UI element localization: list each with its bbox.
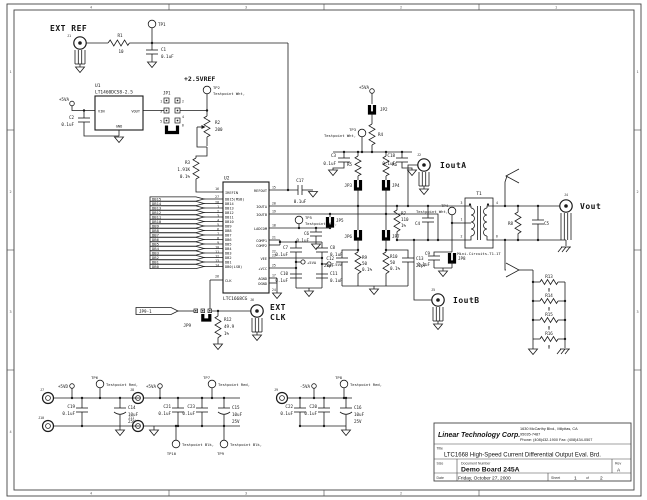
tp2-label: TP2 [213, 85, 220, 90]
ground-symbol [115, 137, 124, 143]
db-flag-row: DB3 11 DB3 [150, 250, 232, 256]
schematic-sheet: 4 3 2 1 4 3 2 1 2 3 4 1 2 3 EXT REF J1 R… [0, 0, 647, 500]
decoupling-cluster: C7 0.1uF +5VA C10 0.1uF C8 0.1uF -5VA C1… [269, 240, 343, 299]
u2-pin-num: 2 [217, 209, 219, 213]
db-flag-row: DB1 13 DB1 [150, 259, 232, 265]
ioutb-label: IoutB [453, 296, 480, 305]
u2-pin-name: DB5 [225, 243, 232, 247]
doc-number: Demo Board 245A [461, 467, 520, 474]
m5va-label: -5VA [300, 384, 311, 389]
r15-value: 0 [548, 326, 551, 331]
u2-pin-name: DGND [258, 282, 267, 286]
c15-refdes: C15 [232, 405, 240, 410]
jp1-shunt [167, 126, 178, 133]
db-flag-row: DB14 28 DB14 [150, 200, 234, 206]
testpoint-tp10 [172, 440, 180, 448]
zone-right-3: 3 [636, 310, 638, 314]
ground-symbol [408, 170, 417, 176]
c19-value: 0.1uF [62, 411, 75, 416]
tp9-label: TP9 [217, 451, 225, 456]
ground-symbol [150, 430, 159, 436]
c12-refdes: C12 [326, 256, 334, 261]
u2-pin-num: 18 [272, 224, 276, 228]
transformer-t1: T1 Mini-Circuits-T1-1T 3 1 2 4 6 [457, 191, 501, 256]
u2-pin-name: DB10 [225, 220, 234, 224]
rev-label: Rev [615, 462, 621, 466]
ground-symbol [309, 192, 318, 198]
ground-symbol [342, 430, 351, 436]
c16-rating: 25V [354, 419, 362, 424]
jp5-label: JP5 [336, 218, 344, 223]
r16-value: 0 [548, 345, 551, 350]
capacitor-c21: C21 0.1uF [158, 397, 184, 427]
tp3-type: Testpoint Wht, [324, 133, 356, 138]
doc-number-label: Document Number [461, 462, 491, 466]
vee-m5va-label: -5VA [333, 262, 343, 267]
jumper-jp6 [356, 230, 361, 239]
u2-pin-num: 8 [217, 236, 219, 240]
ground-symbol [76, 67, 85, 73]
r10-refdes: R10 [390, 254, 398, 259]
zone-top-3: 2 [400, 6, 402, 10]
u2-pin-num: 3 [217, 214, 219, 218]
u2-pin-num: 12 [215, 254, 219, 258]
banana-jack-j7 [43, 393, 54, 404]
u2-pin-num: 5 [217, 223, 219, 227]
tp10-label: TP10 [167, 451, 177, 456]
c7-refdes: C7 [283, 245, 289, 250]
u2-pin-name: IOUTA [256, 205, 268, 209]
power-terminal [301, 260, 305, 264]
r5-jp3-branch: R5 JP3 [344, 152, 361, 206]
power-terminal [70, 101, 75, 106]
db-flag-row: DB5 9 DB5 [150, 241, 232, 247]
t1-refdes: T1 [476, 191, 482, 197]
power-group-5va: J8 +5VA TP7 Testpoint Red, C21 0.1uF C23… [128, 375, 262, 456]
tp4-label: TP4 [441, 203, 449, 208]
c17-refdes: C17 [296, 178, 304, 183]
jumper-jp9: JP9 [183, 309, 211, 328]
potentiometer-r2: R2 200 [197, 111, 223, 148]
ground-symbol [434, 324, 443, 330]
t1-pin3: 3 [461, 201, 463, 205]
u2-pin-num: 16 [215, 187, 219, 191]
r8-refdes: R8 [508, 221, 514, 226]
u2-pin-num: 27 [215, 195, 219, 199]
testpoint-tp9 [220, 440, 228, 448]
c13-refdes: C13 [416, 256, 424, 261]
tp10-type: Testpoint Blk, [182, 442, 214, 447]
u2-pin-name: DB8 [225, 229, 232, 233]
banana-jack-j10 [43, 421, 54, 432]
title-block: Linear Technology Corp. 1630 McCarthy Bl… [434, 423, 631, 482]
ground-symbol [370, 289, 379, 295]
capacitor-c10: C10 0.1uF [275, 271, 302, 283]
zone-bottom-1: 4 [90, 492, 92, 496]
zone-left-4: 4 [9, 430, 11, 434]
r7-refdes: R7 [401, 211, 407, 216]
c21-refdes: C21 [163, 404, 171, 409]
r5-refdes: R5 [347, 162, 353, 167]
company-name: Linear Technology Corp. [438, 432, 520, 439]
jp2-label: JP2 [380, 107, 388, 112]
c5-refdes: C5 [544, 221, 550, 226]
iouta-connector: J2 IoutA [408, 153, 467, 206]
c7-value: 0.1uF [275, 252, 288, 257]
power-terminal [158, 384, 163, 389]
iouta-label: IoutA [440, 161, 467, 170]
c17-value: 0.1uF [294, 199, 307, 204]
u2-pin-num: 24 [272, 288, 276, 292]
u2-pin-num: 26 [215, 275, 219, 279]
r3-tolerance: 0.1% [180, 174, 191, 179]
db-flag-row: DB6 8 DB6 [150, 236, 232, 242]
u1-pin-vout: VOUT [131, 110, 140, 114]
sheet-total: 2 [600, 476, 603, 482]
u2-refdes: U2 [224, 176, 230, 182]
capacitor-c19: C19 0.1uF [62, 397, 88, 427]
r2-refdes: R2 [215, 120, 221, 125]
resistor-r8: R8 [508, 206, 521, 240]
r12-tolerance: 1% [224, 331, 230, 336]
c20-refdes: C20 [309, 404, 317, 409]
c16-value: 10uF [354, 412, 365, 417]
resistor-r15: R15 0 [533, 312, 565, 331]
t1-pin2: 2 [461, 235, 463, 239]
u2-pin-name: DB11 [225, 216, 234, 220]
db-flag-row: DB4 10 DB4 [150, 245, 232, 251]
u1-part: LT1460DCS8-2.5 [95, 90, 133, 96]
u2-pin-name: DB9 [225, 225, 232, 229]
vref-label: +2.5VREF [184, 75, 215, 83]
r7-tolerance: 1% [401, 223, 407, 228]
sheet-label: Sheet [551, 476, 560, 480]
p5vd-label: +5VD [58, 384, 69, 389]
u1-pin-vin: VIN [98, 110, 105, 114]
vcc-5va-label: +5VA [307, 260, 317, 265]
jp1-label: JP1 [163, 91, 171, 96]
u2-pin-name: DB12 [225, 211, 234, 215]
u2-pin-name: LADCOM [254, 227, 268, 231]
resistor-r12: R12 49.9 1% [214, 311, 235, 350]
zone-left-2: 2 [9, 190, 11, 194]
c2-refdes: C2 [69, 115, 75, 120]
ext-ref-section: EXT REF J1 R1 10 TP1 C1 0.1uF [50, 20, 288, 190]
db-flag-row: DB12 2 DB12 [150, 209, 234, 215]
u2-pin-num: 1 [217, 205, 219, 209]
db-flag-row: DB13 1 DB13 [150, 205, 234, 211]
u2-pin-num: 7 [217, 232, 219, 236]
c22-refdes: C22 [285, 404, 293, 409]
tp3-label: TP3 [349, 127, 356, 132]
power-terminal [312, 384, 317, 389]
testpoint-tp5 [295, 216, 303, 224]
power-group-m5va: J9 -5VA TP8 Testpoint Red, C22 0.1uF C20… [274, 375, 382, 436]
jp7-label: JP7 [392, 234, 400, 239]
jp1-pin1: 1 [160, 100, 162, 104]
bnc-connector-j4 [558, 200, 572, 252]
u2-pin-num: 21 [272, 236, 276, 240]
zone-bottom-3: 2 [400, 492, 402, 496]
company-address-2: 95035-7487 [520, 433, 540, 437]
sheet-number: 1 [574, 476, 577, 482]
t1-pin1: 1 [461, 218, 463, 222]
r3-refdes: R3 [185, 160, 191, 165]
capacitor-c18: C18 0.1uF [382, 152, 416, 176]
jumper-jp8 [450, 253, 455, 262]
zone-bottom-2: 3 [245, 492, 247, 496]
u2-pin-num: 11 [215, 250, 219, 254]
bnc-connector-j1 [74, 37, 86, 73]
c8-refdes: C8 [330, 245, 336, 250]
ground-tie-ladder: R13 0 R14 0 R15 0 R16 0 [529, 270, 571, 355]
j1-refdes: J1 [67, 34, 71, 38]
c15-value: 10uF [232, 412, 243, 417]
c23-value: 0.1uF [182, 411, 195, 416]
tp7-type: Testpoint Red, [218, 382, 250, 387]
resistor-r1 [108, 40, 129, 46]
c22-value: 0.1uF [280, 411, 293, 416]
r7-value: 110 [401, 217, 409, 222]
u2-pin-num: 13 [215, 259, 219, 263]
testpoint-tp6 [96, 380, 104, 388]
j7-refdes: J7 [40, 388, 44, 392]
jumper-jp4 [384, 180, 389, 189]
resistor-r7 [394, 210, 400, 232]
r14-value: 0 [548, 307, 551, 312]
u2-pin-name: CLK [225, 279, 232, 283]
u2-pin-name: DB3 [225, 252, 232, 256]
resistor-r3: R3 1.91K 0.1% [177, 158, 199, 179]
company-address-1: 1630 McCarthy Blvd., Milpitas, CA [520, 427, 578, 431]
ext-clk-label-1: EXT [270, 303, 286, 312]
jumper-jp3 [356, 180, 361, 189]
power-terminal [370, 89, 375, 94]
company-phone: Phone: (408)432-1900 Fax: (408)434-0507 [520, 438, 592, 442]
jp1-pin4: 4 [182, 115, 184, 119]
tp9-type: Testpoint Blk, [230, 442, 262, 447]
u2-pin-name: DB2 [225, 256, 232, 260]
j8-refdes: J8 [130, 388, 134, 392]
capacitor-c16: C16 10uF 25V [340, 397, 365, 426]
vout-label: Vout [580, 202, 601, 211]
schematic-canvas: 4 3 2 1 4 3 2 1 2 3 4 1 2 3 EXT REF J1 R… [0, 0, 647, 500]
u2-pin-name: DB1 [225, 261, 232, 265]
resistor-r10 [383, 252, 389, 274]
db-flag-row: DB10 4 DB10 [150, 218, 234, 224]
reference-regulator-section: +5VA C2 0.1uF U1 LT1460DCS8-2.5 VIN VOUT… [59, 83, 208, 143]
capacitor-c5: C5 [532, 206, 550, 240]
power-group-5vd: J7 +5VD TP6 Testpoint Red, C19 0.1uF C14… [38, 375, 140, 436]
r6-refdes: R6 [392, 162, 398, 167]
u2-pin-name: DB7 [225, 234, 232, 238]
tp7-label: TP7 [203, 375, 210, 380]
t1-pin4: 4 [496, 201, 498, 205]
capacitor-c15: C15 10uF 25V [218, 397, 243, 427]
resistor-r9 [355, 252, 361, 274]
capacitor-c22: C22 0.1uF [280, 397, 306, 427]
jp3-label: JP3 [344, 183, 352, 188]
c11-refdes: C11 [330, 271, 338, 276]
j9-refdes: J9 [274, 388, 278, 392]
r4-refdes: R4 [378, 132, 384, 137]
jp8-label: JP8 [458, 256, 466, 261]
zone-left-1: 1 [9, 70, 11, 74]
zone-right-2: 2 [636, 190, 638, 194]
jp1-pin6: 6 [182, 124, 184, 128]
date-label: Date [437, 476, 444, 480]
u1-pin-gnd: GND [116, 125, 123, 129]
u2-pin-num: 25 [272, 264, 276, 268]
t1-primary-winding [471, 208, 475, 236]
tp8-type: Testpoint Red, [350, 382, 382, 387]
j2-refdes: J2 [417, 153, 421, 157]
db-flag-row: DB11 3 DB11 [150, 214, 234, 220]
c11-value: 0.1uF [330, 278, 343, 283]
u2-pin-name: DB0(LSB) [225, 265, 242, 269]
zone-top-4: 1 [555, 6, 557, 10]
u2-pin-name: REFOUT [254, 189, 268, 193]
u2-pin-num: 19 [272, 210, 276, 214]
u2-pin-name: COMP2 [256, 244, 267, 248]
bnc-connector-j6 [251, 305, 263, 341]
r1-refdes: R1 [117, 33, 123, 38]
c3-refdes: C3 [331, 153, 337, 158]
u2-pin-name: VEE [261, 257, 268, 261]
ground-symbol [305, 291, 314, 297]
db-flag-label: DB0 [152, 264, 160, 269]
c9-value: 0.1uF [417, 262, 430, 267]
db-flag-row: DB2 12 DB2 [150, 254, 232, 260]
tp6-type: Testpoint Red, [106, 382, 138, 387]
testpoint-tp1 [148, 20, 156, 28]
u2-part: LTC1668CG [223, 296, 248, 302]
jumper-jp2 [370, 105, 375, 113]
ext-clk-label-2: CLK [270, 313, 286, 322]
r14-refdes: R14 [545, 293, 553, 298]
jp9-label: JP9 [183, 323, 191, 328]
ground-symbol [148, 62, 157, 68]
vref-section: +2.5VREF TP2 Testpoint Wht, R2 200 R3 1.… [177, 75, 245, 192]
ground-symbol [312, 244, 321, 250]
plus5va-label: +5VA [59, 97, 70, 102]
c23-refdes: C23 [187, 404, 195, 409]
jp6-label: JP6 [344, 234, 352, 239]
db-flag-row: DB8 6 DB8 [150, 227, 232, 233]
c14-refdes: C14 [128, 405, 136, 410]
u2-pin-name: DB13 [225, 207, 234, 211]
capacitor-c23: C23 0.1uF [182, 397, 208, 427]
c4-refdes: C4 [415, 221, 421, 226]
c20-value: 0.1uF [304, 411, 317, 416]
u2-pin-name: DB14 [225, 202, 234, 206]
bias-5va-label: +5VA [359, 85, 370, 90]
r2-value: 200 [215, 127, 223, 132]
r10-tolerance: 0.1% [390, 266, 401, 271]
ground-symbol [273, 293, 282, 299]
testpoint-tp7 [208, 380, 216, 388]
u2-pin-num: 10 [215, 245, 219, 249]
j10-refdes: J10 [38, 416, 44, 420]
t1-pin6: 6 [496, 235, 498, 239]
title-label: Title [437, 447, 444, 451]
u2-pin-name: COMP1 [256, 239, 267, 243]
power-terminal [70, 384, 75, 389]
size-label: Size [437, 462, 444, 466]
of-label: of [586, 476, 589, 480]
bias-network: +5VA JP2 R4 TP3 Testpoint Wht, C3 0.1uF [323, 85, 416, 214]
r9-tolerance: 0.1% [362, 267, 373, 272]
chassis-ground [557, 349, 570, 354]
t1-secondary-winding [484, 208, 487, 236]
r16-refdes: R16 [545, 331, 553, 336]
zone-top-2: 3 [245, 6, 247, 10]
r13-value: 0 [548, 288, 551, 293]
u2-pin-num: 14 [215, 263, 219, 267]
u2-pin-name: IREFIN [225, 191, 238, 195]
schematic-title: LTC1668 High-Speed Current Differential … [444, 453, 601, 459]
c6-refdes: C6 [304, 231, 310, 236]
r13-refdes: R13 [545, 274, 553, 279]
resistor-r4 [369, 124, 375, 145]
testpoint-tp3 [358, 129, 366, 137]
u2-pin-name: IOUTB [256, 213, 267, 217]
u2-pin-num: 17 [272, 274, 276, 278]
c19-refdes: C19 [67, 404, 75, 409]
c16-refdes: C16 [354, 405, 362, 410]
testpoint-tp8 [340, 380, 348, 388]
u2-pin-num: 9 [217, 241, 219, 245]
ground-symbol [253, 335, 262, 341]
ext-ref-label: EXT REF [50, 24, 87, 33]
u2-pin-name: AGND [258, 277, 267, 281]
ground-symbol [420, 189, 429, 195]
c2-value: 0.1uF [61, 122, 74, 127]
j11-refdes: J11 [128, 416, 134, 420]
capacitor-c11: C11 0.1uF [316, 271, 343, 283]
zone-left-3: 3 [9, 310, 11, 314]
j6-refdes: J6 [250, 298, 254, 302]
date-value: Friday, October 27, 2000 [458, 476, 511, 482]
tp5-label: TP5 [305, 215, 312, 220]
c15-rating: 25V [232, 419, 240, 424]
rev-value: A [617, 468, 621, 474]
u1-refdes: U1 [95, 83, 101, 89]
tp2-type: Testpoint Wht, [213, 91, 245, 96]
tp4-type: Testpoint Wht, [416, 209, 448, 214]
db-flag-row: DB7 7 DB7 [150, 232, 232, 238]
j4-refdes: J4 [564, 193, 568, 197]
c1-value: 0.1uF [161, 54, 174, 59]
jumper-jp1: JP1 1 3 5 2 4 6 [160, 91, 184, 133]
capacitor-c20: C20 0.1uF [304, 397, 330, 427]
u2-pin-name: +VCC [258, 267, 267, 271]
zone-right-1: 1 [636, 70, 638, 74]
tp6-label: TP6 [91, 375, 99, 380]
u2-pin-num: 15 [272, 186, 276, 190]
capacitor-c6: C6 0.1uF [296, 227, 322, 250]
ground-symbol [116, 430, 125, 436]
refout-c17: C17 0.1uF [269, 178, 318, 204]
db-flag-row: DB9 5 DB9 [150, 223, 232, 229]
jp1-pin2: 2 [182, 100, 184, 104]
resistor-r13: R13 0 [533, 274, 565, 293]
db-flag-row: DB0 14 DB0(LSB) [150, 263, 242, 269]
t1-part: Mini-Circuits-T1-1T [457, 251, 501, 256]
tp8-label: TP8 [335, 375, 343, 380]
ground-symbol [329, 170, 338, 176]
chassis-ground [558, 247, 571, 252]
